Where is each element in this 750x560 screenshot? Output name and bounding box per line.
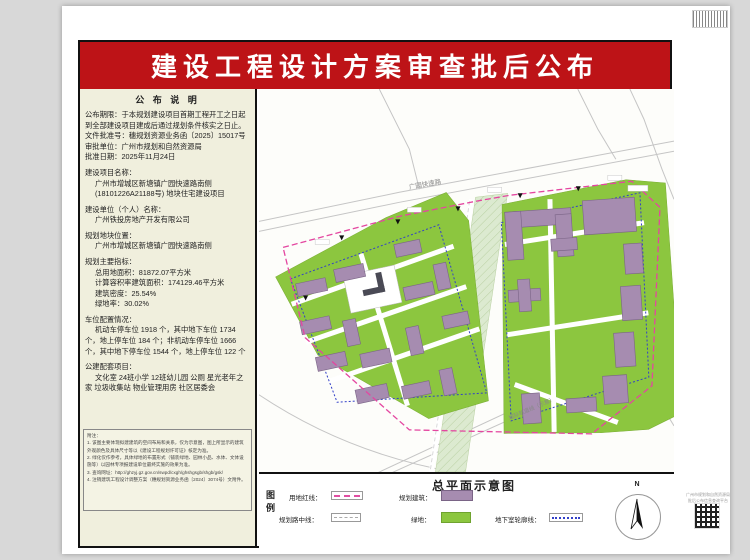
project-unit-label: 建设单位（个人）名称：	[85, 205, 250, 216]
legend-label-building: 规划建筑：	[399, 492, 432, 502]
north-arrow-icon	[615, 494, 661, 540]
legend-label-redline: 用地红线：	[289, 492, 322, 502]
notice-period: 公布期限：于本规划建设项目首期工程开工之日起到全部建设项目建成后通过规划条件核实…	[85, 110, 250, 131]
site-plan-map: 广园快速路 城际轨道线（示意）	[259, 89, 674, 472]
qr-code	[694, 503, 720, 529]
project-name-label: 建设项目名称：	[85, 168, 250, 179]
east-parcel	[487, 177, 674, 439]
title-banner: 建设工程设计方案审查批后公布	[80, 42, 670, 89]
legend-swatch-building	[441, 490, 473, 501]
note-4: 4. 注销建筑工程设计调整方案（穗规划资源业务函〔2024〕3074号）文附件。	[87, 476, 248, 483]
parking-text: 机动车停车位 1918 个，其中地下车位 1734个，地上停车位 184 个；非…	[85, 325, 250, 357]
site-plan-drawing: 广园快速路 城际轨道线（示意）	[259, 89, 674, 472]
indicator-land-area: 总用地面积：81872.07平方米	[85, 268, 250, 279]
project-name-line1: 广州市增城区新塘镇广园快速路南侧	[85, 179, 250, 190]
indicator-density: 建筑密度：25.54%	[85, 289, 250, 300]
note-1: 1. 该图主要体现拟建建筑的空间布局和关系，仅为示意图，图上所显示的建筑外观颜色…	[87, 439, 248, 454]
facilities-label: 公建配套项目：	[85, 362, 250, 373]
notes-box: 附注： 1. 该图主要体现拟建建筑的空间布局和关系，仅为示意图，图上所显示的建筑…	[83, 429, 252, 511]
notice-authority: 审批单位：广州市规划和自然资源局	[85, 142, 250, 153]
legend-swatch-basement	[549, 513, 583, 522]
notice-approval-date: 批准日期：2025年11月24日	[85, 152, 250, 163]
notice-heading: 公 布 说 明	[85, 94, 250, 107]
legend-label-green: 绿地：	[411, 514, 431, 524]
legend-band: 总平面示意图 图例 用地红线： 规划建筑： 规划路中线： 绿地： 地下室轮廓线：…	[259, 472, 674, 548]
qr-caption: 广州市规划和自然资源局 批后公布信息查询平台	[668, 492, 748, 503]
page-background: 建设工程设计方案审查批后公布 公 布 说 明 公布期限：于本规划建设项目首期工程…	[0, 0, 750, 560]
facilities-text: 文化室 24班小学 12班幼儿园 公厕 星光老年之家 垃圾收集站 物业管理用房 …	[85, 373, 250, 394]
page-title: 建设工程设计方案审查批后公布	[151, 47, 599, 84]
indicator-green-ratio: 绿地率：30.02%	[85, 299, 250, 310]
paper-sheet: 建设工程设计方案审查批后公布 公 布 说 明 公布期限：于本规划建设项目首期工程…	[62, 6, 730, 554]
note-2: 2. 绿化仅作参考，具体绿地的布置形式（铺装绿地、园林小品、水体、文体设施等）以…	[87, 454, 248, 469]
legend-label-basement: 地下室轮廓线：	[495, 514, 541, 524]
announcement-panel: 公 布 说 明 公布期限：于本规划建设项目首期工程开工之日起到全部建设项目建成后…	[80, 89, 257, 546]
legend-swatch-redline	[331, 491, 363, 500]
notice-doc-no: 文件批准号：穗规划资源业务函〔2025〕15017号	[85, 131, 250, 142]
notes-heading: 附注：	[87, 432, 248, 439]
north-label: N	[615, 481, 659, 488]
indicator-floor-area: 计算容积率建筑面积：174129.46平方米	[85, 278, 250, 289]
legend-label-road-centerline: 规划路中线：	[279, 514, 318, 524]
project-location: 广州市增城区新塘镇广园快速路南侧	[85, 241, 250, 252]
project-location-label: 规划地块位置：	[85, 231, 250, 242]
poster-frame: 建设工程设计方案审查批后公布 公 布 说 明 公布期限：于本规划建设项目首期工程…	[78, 40, 672, 548]
legend-key-label: 图例	[264, 490, 277, 516]
project-unit-name: 广州铁投房地产开发有限公司	[85, 215, 250, 226]
project-name-line2: (18101226A21188号) 地块住宅建设项目	[85, 189, 250, 200]
top-road-label: 广园快速路	[408, 177, 442, 192]
legend-swatch-green	[441, 512, 471, 523]
legend-swatch-road-centerline	[331, 513, 361, 522]
indicators-label: 规划主要指标：	[85, 257, 250, 268]
parking-label: 车位配置情况：	[85, 315, 250, 326]
note-3: 3. 查询网址：http://ghzyj.gz.gov.cn/swpd/cxgh…	[87, 469, 248, 476]
document-barcode-icon	[692, 10, 728, 28]
